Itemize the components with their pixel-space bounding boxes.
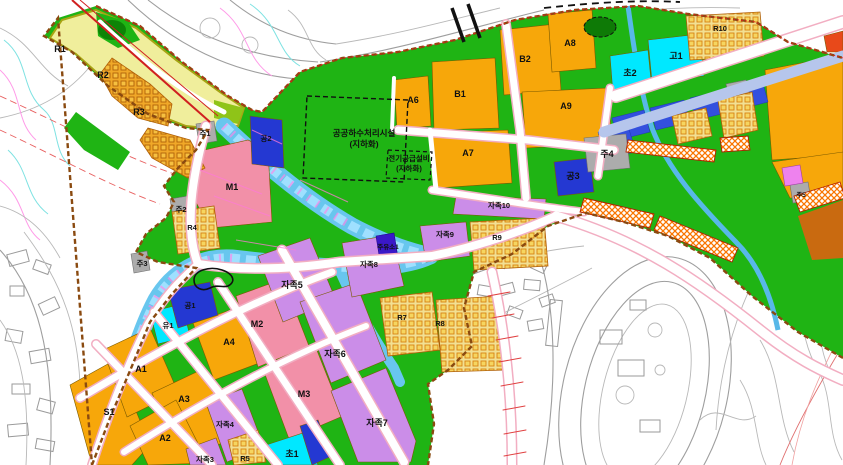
label-r2: R2 (97, 70, 109, 80)
label-r3: R3 (133, 107, 145, 117)
label-go1: 고1 (669, 51, 682, 61)
label-ju3: 주3 (136, 259, 147, 268)
railway-bridge-marks (452, 8, 464, 42)
label-gong3: 공3 (566, 171, 579, 181)
label-r7: R7 (397, 313, 407, 322)
label-sewage-line1: 공공하수처리시설 (333, 128, 396, 138)
parcel-pink-small (782, 165, 803, 186)
label-jj10: 자족10 (488, 200, 510, 210)
label-r10: R10 (713, 24, 727, 33)
label-r9: R9 (492, 233, 502, 242)
label-m3: M3 (298, 389, 311, 399)
label-ju1: 주1 (199, 129, 210, 138)
label-cho1: 초1 (285, 449, 298, 459)
label-m1: M1 (226, 182, 239, 192)
cluster-r7 (380, 292, 440, 356)
label-b2: B2 (519, 54, 531, 64)
label-a7: A7 (462, 148, 474, 158)
label-jj6: 자족6 (324, 348, 346, 359)
label-a9: A9 (560, 101, 572, 111)
map-canvas: R1 R2 R3 R4 R5 R7 R8 R9 R10 주1 주2 주3 주4 … (0, 0, 843, 465)
label-power-line1: 전기공급설비 (388, 153, 429, 163)
label-r5: R5 (240, 454, 250, 463)
label-jj4: 자족4 (216, 419, 235, 429)
label-gas-station: 주유소1 (377, 242, 399, 251)
existing-town-blocks (0, 232, 80, 465)
label-a8: A8 (564, 38, 576, 48)
label-a6: A6 (407, 95, 419, 105)
label-ju5: 주5 (796, 191, 806, 199)
label-gong2: 공2 (260, 134, 271, 143)
road-a6-west (392, 78, 394, 130)
label-r8: R8 (435, 319, 445, 328)
label-cho2: 초2 (623, 68, 636, 78)
label-sewage-line2: (지하화) (349, 139, 378, 149)
label-ju2: 주2 (175, 205, 186, 214)
label-power-line2: (지하화) (396, 163, 422, 173)
dark-green-blob (584, 17, 616, 37)
label-jj8: 자족8 (360, 259, 378, 269)
label-jj5: 자족5 (281, 279, 303, 290)
landuse-map: R1 R2 R3 R4 R5 R7 R8 R9 R10 주1 주2 주3 주4 … (0, 0, 843, 465)
label-a3: A3 (178, 394, 190, 404)
label-m2: M2 (251, 319, 264, 329)
label-gong1: 공1 (184, 301, 195, 310)
label-a2: A2 (159, 433, 171, 443)
label-r4: R4 (187, 223, 197, 232)
label-a1: A1 (135, 364, 147, 374)
label-yu1: 유1 (162, 321, 173, 330)
label-ju4: 주4 (600, 149, 613, 159)
label-b1: B1 (454, 89, 466, 99)
label-jj7: 자족7 (366, 417, 388, 428)
label-jj9: 자족9 (436, 229, 454, 239)
label-jj3: 자족3 (196, 454, 214, 464)
label-a4: A4 (223, 337, 235, 347)
label-r1: R1 (54, 44, 66, 54)
label-s1: S1 (103, 407, 114, 417)
